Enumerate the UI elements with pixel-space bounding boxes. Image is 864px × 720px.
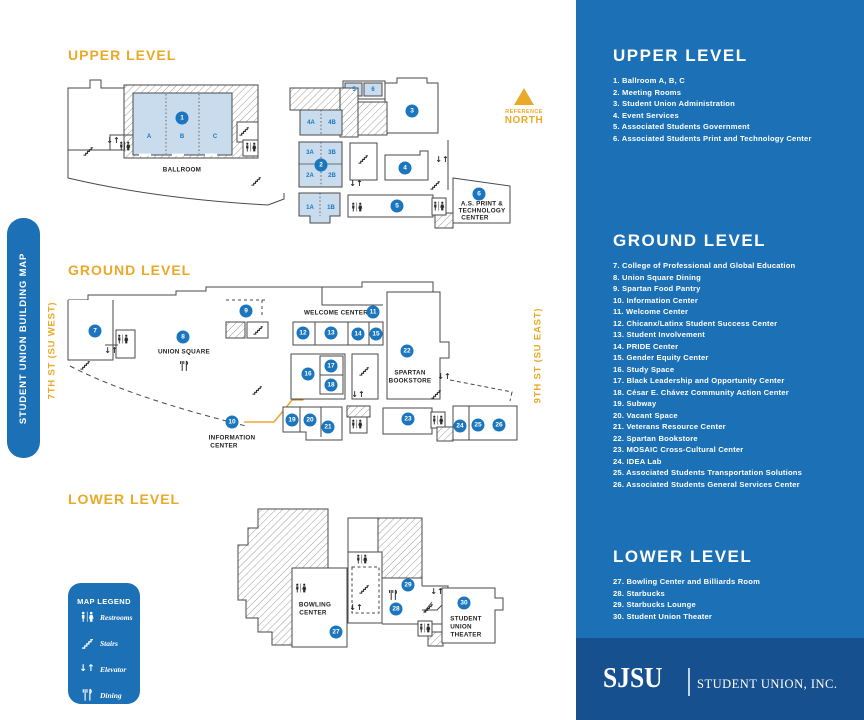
room-label-C: C — [213, 134, 217, 140]
location-marker-7: 7 — [89, 325, 102, 338]
stairs-icon — [83, 146, 94, 157]
directory-item: 19. Subway — [613, 398, 850, 410]
stairs-icon — [359, 366, 370, 377]
map-label: UNION — [450, 624, 472, 631]
directory-item: 13. Student Involvement — [613, 329, 850, 341]
directory-item: 17. Black Leadership and Opportunity Cen… — [613, 375, 850, 387]
directory-panel: UPPER LEVEL1. Ballroom A, B, C2. Meeting… — [576, 0, 864, 638]
stairs-icon — [252, 385, 263, 396]
directory-item: 30. Student Union Theater — [613, 611, 850, 623]
directory-item: 26. Associated Students General Services… — [613, 479, 850, 491]
room-label-4B: 4B — [328, 120, 336, 126]
panel-heading-lower: LOWER LEVEL — [613, 547, 850, 567]
map-label: WELCOME CENTER — [304, 310, 368, 317]
directory-item: 10. Information Center — [613, 295, 850, 307]
room-label-5: 5 — [352, 87, 355, 93]
org-name: STUDENT UNION, INC. — [697, 677, 838, 692]
location-marker-20: 20 — [304, 414, 317, 427]
map-label: INFORMATION — [209, 435, 256, 442]
directory-item: 27. Bowling Center and Billiards Room — [613, 576, 850, 588]
map-label: UNION SQUARE — [158, 349, 210, 356]
location-marker-30: 30 — [458, 597, 471, 610]
restrooms-icon — [419, 623, 432, 633]
directory-item: 16. Study Space — [613, 364, 850, 376]
location-marker-5: 5 — [391, 200, 404, 213]
stairs-icon — [80, 360, 91, 371]
location-marker-12: 12 — [297, 327, 310, 340]
location-marker-25: 25 — [472, 419, 485, 432]
room-label-A: A — [147, 134, 151, 140]
room-label-1B: 1B — [327, 205, 335, 211]
restrooms-icon — [351, 419, 364, 429]
elevator-icon: ↓↑ — [104, 347, 117, 355]
map-label: CENTER — [210, 443, 237, 450]
restrooms-icon — [432, 415, 445, 425]
dining-icon — [389, 589, 398, 601]
restrooms-icon — [245, 142, 258, 152]
room-label-1A: 1A — [306, 205, 314, 211]
map-label: THEATER — [450, 632, 481, 639]
directory-item: 22. Spartan Bookstore — [613, 433, 850, 445]
directory-item: 29. Starbucks Lounge — [613, 599, 850, 611]
location-marker-26: 26 — [493, 419, 506, 432]
map-label: BALLROOM — [163, 167, 201, 174]
restrooms-icon — [356, 554, 369, 564]
restrooms-icon — [117, 334, 130, 344]
directory-item: 8. Union Square Dining — [613, 272, 850, 284]
directory-item: 24. IDEA Lab — [613, 456, 850, 468]
location-marker-27: 27 — [330, 626, 343, 639]
stairs-icon — [431, 389, 442, 400]
location-marker-2: 2 — [315, 159, 328, 172]
map-label: CENTER — [461, 215, 488, 222]
directory-item: 14. PRIDE Center — [613, 341, 850, 353]
panel-heading-ground: GROUND LEVEL — [613, 231, 850, 251]
map-label: SPARTAN — [394, 370, 425, 377]
directory-item: 15. Gender Equity Center — [613, 352, 850, 364]
building-map-poster: STUDENT UNION BUILDING MAP 7TH ST (SU WE… — [0, 0, 864, 720]
room-label-2A: 2A — [306, 173, 314, 179]
restrooms-icon — [433, 201, 446, 211]
room-label-B: B — [180, 134, 184, 140]
directory-item: 12. Chicanx/Latinx Student Success Cente… — [613, 318, 850, 330]
stairs-icon — [423, 603, 434, 614]
directory-item: 2. Meeting Rooms — [613, 87, 850, 99]
room-label-3B: 3B — [328, 150, 336, 156]
location-marker-9: 9 — [240, 305, 253, 318]
map-label: BOWLING — [299, 602, 331, 609]
map-label: CENTER — [299, 610, 326, 617]
elevator-icon: ↓↑ — [437, 373, 450, 381]
location-marker-8: 8 — [177, 331, 190, 344]
directory-item: 5. Associated Students Government — [613, 121, 850, 133]
directory-item: 1. Ballroom A, B, C — [613, 75, 850, 87]
location-marker-16: 16 — [302, 368, 315, 381]
location-marker-15: 15 — [370, 328, 383, 341]
panel-section-upper: UPPER LEVEL1. Ballroom A, B, C2. Meeting… — [613, 46, 850, 144]
restrooms-icon — [295, 583, 308, 593]
room-label-2B: 2B — [328, 173, 336, 179]
sjsu-logo: SJSU — [603, 662, 663, 695]
directory-item: 20. Vacant Space — [613, 410, 850, 422]
map-label: STUDENT — [450, 616, 482, 623]
location-marker-10: 10 — [226, 416, 239, 429]
stairs-icon — [251, 176, 262, 187]
map-label: TECHNOLOGY — [459, 208, 506, 215]
room-label-4A: 4A — [307, 120, 315, 126]
directory-item: 25. Associated Students Transportation S… — [613, 467, 850, 479]
location-marker-22: 22 — [401, 345, 414, 358]
directory-item: 23. MOSAIC Cross-Cultural Center — [613, 444, 850, 456]
map-label: A.S. PRINT & — [461, 201, 503, 208]
location-marker-29: 29 — [402, 579, 415, 592]
directory-item: 9. Spartan Food Pantry — [613, 283, 850, 295]
stairs-icon — [359, 584, 370, 595]
location-marker-18: 18 — [325, 379, 338, 392]
directory-item: 21. Veterans Resource Center — [613, 421, 850, 433]
restrooms-icon — [351, 202, 364, 212]
location-marker-21: 21 — [322, 421, 335, 434]
elevator-icon: ↓↑ — [106, 137, 119, 145]
location-marker-6: 6 — [473, 188, 486, 201]
location-marker-1: 1 — [176, 112, 189, 125]
location-marker-11: 11 — [367, 306, 380, 319]
panel-section-ground: GROUND LEVEL7. College of Professional a… — [613, 231, 850, 490]
map-overlay: 123456ABC564A4B3A3B2A2B1A1BBALLROOMA.S. … — [0, 0, 576, 720]
stairs-icon — [430, 180, 441, 191]
room-label-3A: 3A — [306, 150, 314, 156]
location-marker-3: 3 — [406, 105, 419, 118]
restrooms-icon — [119, 141, 132, 151]
panel-section-lower: LOWER LEVEL27. Bowling Center and Billia… — [613, 547, 850, 622]
directory-item: 7. College of Professional and Global Ed… — [613, 260, 850, 272]
panel-heading-upper: UPPER LEVEL — [613, 46, 850, 66]
elevator-icon: ↓↑ — [435, 156, 448, 164]
directory-item: 28. Starbucks — [613, 588, 850, 600]
elevator-icon: ↓↑ — [349, 604, 362, 612]
directory-item: 11. Welcome Center — [613, 306, 850, 318]
map-label: BOOKSTORE — [389, 378, 432, 385]
elevator-icon: ↓↑ — [351, 391, 364, 399]
location-marker-13: 13 — [325, 327, 338, 340]
location-marker-14: 14 — [352, 328, 365, 341]
directory-item: 18. César E. Chávez Community Action Cen… — [613, 387, 850, 399]
location-marker-4: 4 — [399, 162, 412, 175]
stairs-icon — [239, 126, 250, 137]
stairs-icon — [253, 325, 264, 336]
location-marker-23: 23 — [402, 413, 415, 426]
directory-item: 4. Event Services — [613, 110, 850, 122]
logo-divider — [688, 668, 690, 696]
stairs-icon — [358, 154, 369, 165]
elevator-icon: ↓↑ — [349, 180, 362, 188]
elevator-icon: ↓↑ — [430, 588, 443, 596]
directory-item: 6. Associated Students Print and Technol… — [613, 133, 850, 145]
dining-icon — [180, 360, 189, 372]
location-marker-28: 28 — [390, 603, 403, 616]
footer: SJSU STUDENT UNION, INC. — [576, 638, 864, 720]
directory-item: 3. Student Union Administration — [613, 98, 850, 110]
location-marker-19: 19 — [286, 414, 299, 427]
location-marker-17: 17 — [325, 360, 338, 373]
location-marker-24: 24 — [454, 420, 467, 433]
room-label-6: 6 — [371, 87, 374, 93]
